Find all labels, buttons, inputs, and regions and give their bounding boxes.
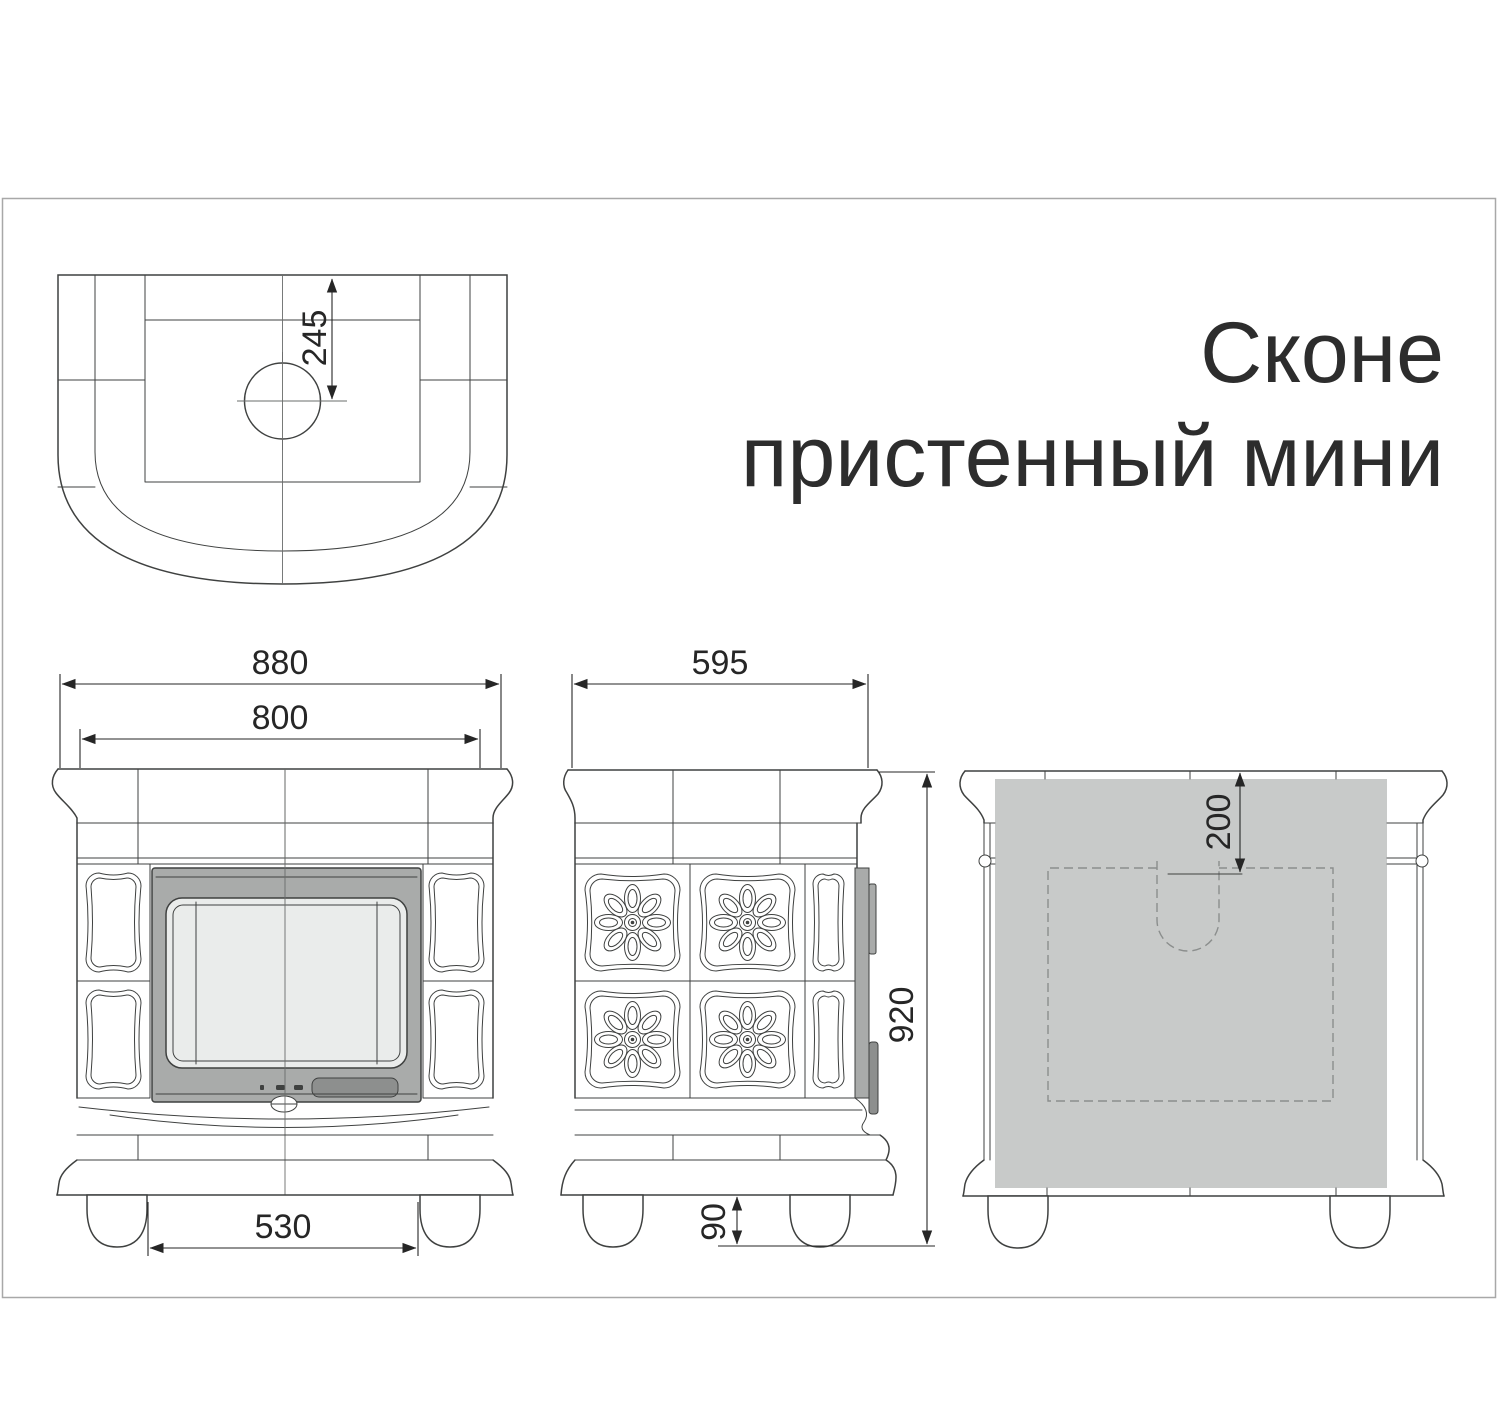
side-rosette-tile — [585, 874, 680, 971]
front-right-foot — [420, 1195, 480, 1247]
technical-drawing-page: 245 Сконе пристенный мини 880 800 — [0, 0, 1500, 1427]
left-column-bead — [979, 855, 991, 867]
side-front-foot — [790, 1195, 850, 1247]
dim-body-width-label: 800 — [252, 699, 309, 737]
side-rosette-tile — [700, 874, 795, 971]
side-narrow-tile — [813, 874, 844, 971]
dim-depth-label: 595 — [692, 644, 749, 682]
side-rosette-tile — [700, 991, 795, 1088]
dim-flue-offset-label: 245 — [296, 310, 334, 367]
heat-shield-panel — [995, 779, 1387, 1188]
side-rosette-tile — [585, 991, 680, 1088]
front-left-tile — [86, 873, 141, 972]
front-view: 880 800 — [52, 644, 513, 1256]
side-handle-bar — [869, 1042, 878, 1114]
dim-overall-height-label: 920 — [883, 987, 921, 1044]
dim-feet-spacing-label: 530 — [255, 1208, 312, 1246]
front-right-tile — [429, 873, 484, 972]
stove-dimension-drawing: 245 Сконе пристенный мини 880 800 — [0, 0, 1500, 1427]
back-right-foot — [1330, 1196, 1390, 1248]
dim-shield-offset-label: 200 — [1200, 794, 1238, 851]
dim-overall-width-label: 880 — [252, 644, 309, 682]
drawing-title: Сконе пристенный мини — [741, 305, 1444, 505]
side-view: 595 — [561, 644, 935, 1247]
top-view: 245 — [58, 275, 507, 584]
door-latch-knob — [271, 1096, 297, 1112]
back-left-foot — [988, 1196, 1048, 1248]
front-left-tile — [86, 990, 141, 1089]
side-back-foot — [583, 1195, 643, 1247]
title-line2: пристенный мини — [741, 409, 1444, 505]
front-right-tile — [429, 990, 484, 1089]
front-left-foot — [87, 1195, 147, 1247]
dim-foot-height-label: 90 — [695, 1203, 733, 1241]
right-column-bead — [1416, 855, 1428, 867]
dim-body-width: 800 — [80, 699, 480, 768]
side-narrow-tile — [813, 991, 844, 1088]
door-glass — [166, 898, 407, 1068]
firebox-door — [152, 868, 421, 1102]
title-line1: Сконе — [1200, 305, 1444, 401]
dim-foot-height: 90 — [695, 1197, 737, 1244]
back-view: 200 — [960, 771, 1447, 1248]
dim-overall-height: 920 — [879, 772, 935, 1244]
dim-feet-spacing: 530 — [148, 1202, 418, 1256]
dim-depth: 595 — [572, 644, 868, 768]
door-edge-profile — [855, 868, 878, 1114]
